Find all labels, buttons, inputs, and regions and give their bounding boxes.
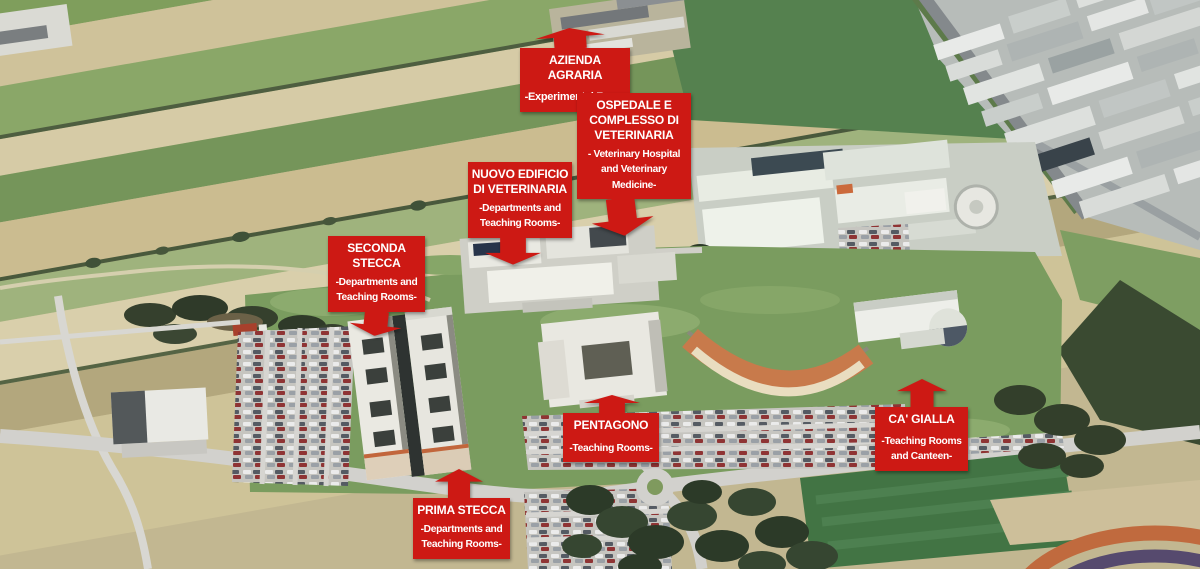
callout-title: SECONDA STECCA	[331, 241, 422, 271]
campus-aerial-map: AZIENDA AGRARIA -Experimental Farm- OSPE…	[0, 0, 1200, 569]
callout-title: AZIENDA AGRARIA	[523, 53, 627, 83]
veterinary-hospital-complex	[688, 133, 1062, 261]
callout-title: OSPEDALE E COMPLESSO DI VETERINARIA	[580, 98, 688, 143]
stecca-buildings	[347, 307, 471, 483]
callout-subtitle: -Teaching Rooms and Canteen-	[878, 434, 965, 465]
roundabout	[636, 468, 674, 506]
callout-seconda-stecca: SECONDA STECCA -Departments and Teaching…	[328, 236, 425, 312]
callout-prima-stecca: PRIMA STECCA -Departments and Teaching R…	[413, 498, 510, 559]
callout-subtitle: -Departments and Teaching Rooms-	[331, 275, 422, 306]
callout-title: PRIMA STECCA	[416, 503, 507, 518]
building-bottom-left	[111, 387, 209, 458]
callout-title: NUOVO EDIFICIO DI VETERINARIA	[471, 167, 569, 197]
callout-title: CA' GIALLA	[878, 412, 965, 427]
callout-pentagono: PENTAGONO -Teaching Rooms-	[563, 413, 659, 462]
callout-subtitle: -Departments and Teaching Rooms-	[471, 201, 569, 232]
pentagono-building	[536, 312, 669, 412]
callout-ospedale-veterinaria: OSPEDALE E COMPLESSO DI VETERINARIA - Ve…	[577, 93, 691, 199]
callout-subtitle: -Departments and Teaching Rooms-	[416, 522, 507, 553]
callout-ca-gialla: CA' GIALLA -Teaching Rooms and Canteen-	[875, 407, 968, 471]
callout-nuovo-edificio: NUOVO EDIFICIO DI VETERINARIA -Departmen…	[468, 162, 572, 238]
callout-title: PENTAGONO	[566, 418, 656, 433]
callout-subtitle: - Veterinary Hospital and Veterinary Med…	[580, 147, 688, 193]
callout-subtitle: -Teaching Rooms-	[566, 441, 656, 456]
